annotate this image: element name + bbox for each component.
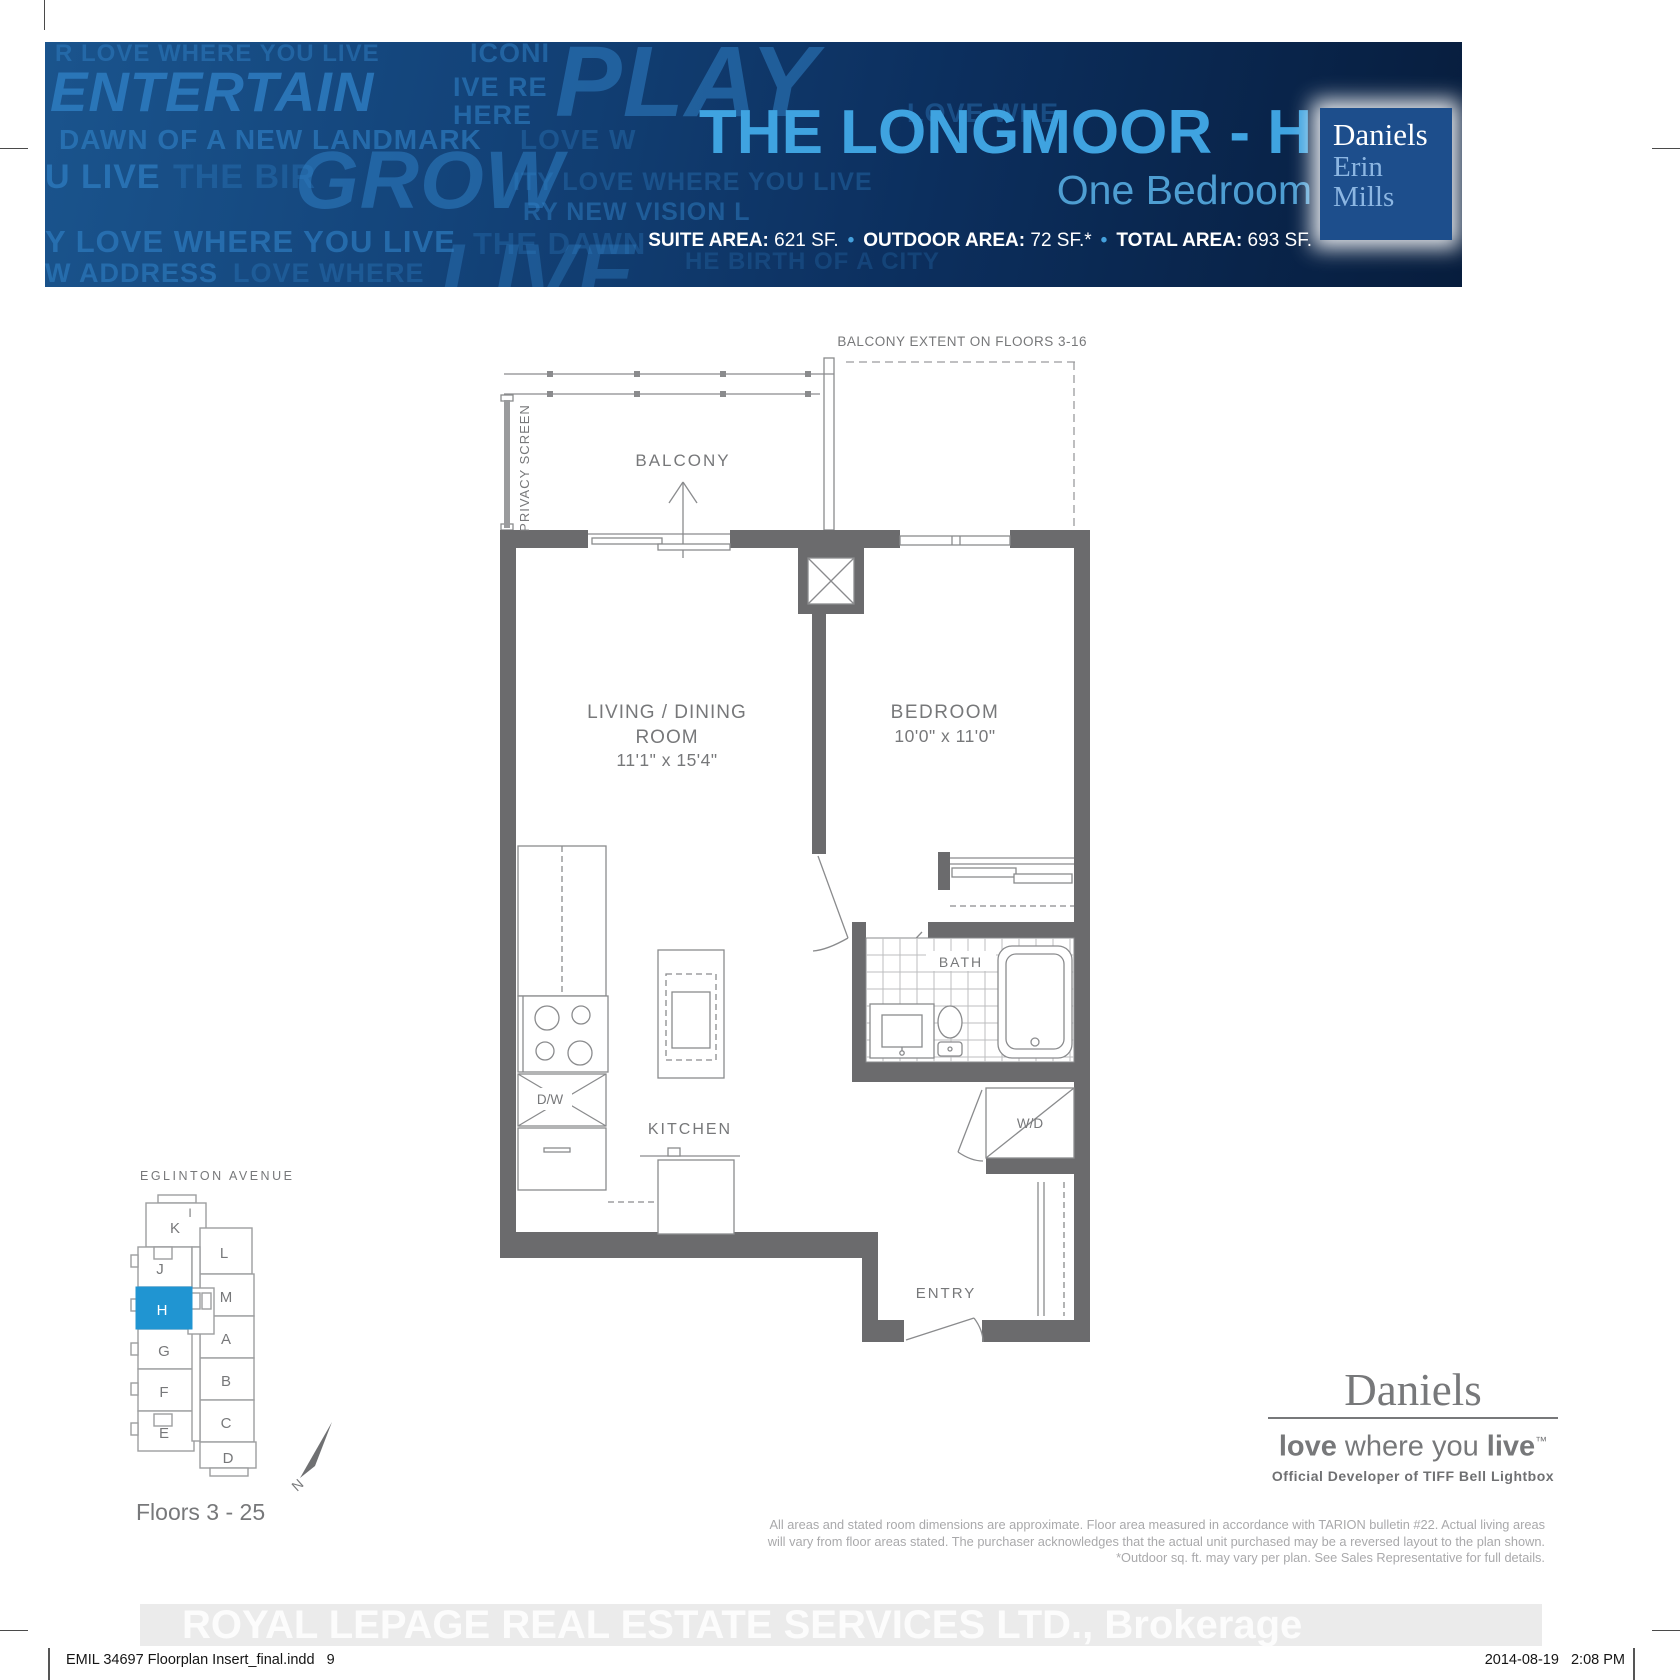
entry-door [906,1318,983,1342]
balcony-label: BALCONY [635,451,730,470]
crop-mark-left-h [0,148,28,149]
logo-line-mills: Mills [1333,182,1452,213]
bedroom-window [900,536,1010,545]
developer-line: Official Developer of TIFF Bell Lightbox [1268,1468,1558,1484]
tagline-love: love [1279,1431,1337,1463]
header-banner: R LOVE WHERE YOU LIVEICONIENTERTAINIVE R… [45,42,1462,287]
unit-c: C [221,1415,232,1432]
brokerage-watermark-text: ROYAL LEPAGE REAL ESTATE SERVICES LTD., … [182,1604,1302,1646]
disclaimer-text: All areas and stated room dimensions are… [600,1517,1545,1567]
print-bar-left [48,1648,50,1680]
disclaimer-line-3: *Outdoor sq. ft. may vary per plan. See … [600,1550,1545,1567]
unit-b: B [221,1373,231,1390]
banner-watermark-word: W ADDRESS [45,260,218,287]
entry-closet [1038,1182,1064,1316]
bedroom-dims: 10'0" x 11'0" [894,726,995,746]
total-area-value: 693 SF. [1242,230,1312,251]
crop-mark-bottom-left-h [0,1630,28,1631]
unit-i: I [188,1206,191,1220]
unit-f: F [159,1384,168,1401]
living-room-label-1: LIVING / DINING [587,702,747,723]
unit-d: D [223,1450,234,1467]
privacy-screen-label: PRIVACY SCREEN [517,404,532,532]
living-room-label-2: ROOM [635,727,698,748]
outdoor-area-label: OUTDOOR AREA: [863,230,1025,251]
bedroom-closet [950,858,1074,906]
total-area-label: TOTAL AREA: [1116,230,1242,251]
trademark-symbol: ™ [1535,1434,1547,1448]
suite-area-label: SUITE AREA: [648,230,769,251]
street-label: EGLINTON AVENUE [140,1169,294,1183]
balcony-extent-dashed [846,362,1078,528]
compass-n-label: N [288,1476,306,1495]
fridge [658,1160,734,1234]
kitchen-counters [518,846,740,1234]
balcony-railing [501,358,834,530]
daniels-erin-mills-logo: Daniels Erin Mills [1320,108,1452,240]
bedroom-door [813,856,848,951]
tagline: love where you live™ [1268,1425,1558,1463]
area-stats: SUITE AREA: 621 SF.•OUTDOOR AREA: 72 SF.… [648,230,1312,252]
unit-k: K [170,1220,180,1237]
toilet [938,1006,962,1056]
banner-watermark-word: LOVE WHERE [233,260,425,287]
bathtub [998,946,1072,1058]
unit-l: L [220,1245,228,1262]
balcony-extent-label: BALCONY EXTENT ON FLOORS 3-16 [837,334,1087,349]
stat-separator: • [839,230,864,251]
unit-m: M [220,1289,233,1306]
privacy-screen-panel [504,400,510,528]
print-bar-right [1633,1648,1635,1680]
file-note: EMIL 34697 Floorplan Insert_final.indd 9 [66,1652,335,1668]
tagline-live: live [1487,1431,1535,1463]
banner-watermark-word: Y LOVE WHERE YOU LIVE [45,226,456,257]
floorplan-drawing: BALCONY EXTENT ON FLOORS 3-16 PRIVACY SC… [495,325,1095,1385]
daniels-wordmark: Daniels [1268,1366,1558,1414]
crop-mark-top-left-v [44,0,45,30]
banner-watermark-word: LIVE [440,232,635,287]
wd-label: W/D [1017,1116,1043,1131]
disclaimer-line-2: will vary from floor areas stated. The p… [600,1534,1545,1551]
daniels-footer-logo: Daniels love where you live™ Official De… [1268,1366,1558,1484]
stat-separator: • [1092,230,1117,251]
unit-j: J [156,1261,164,1278]
keyplan: EGLINTON AVENUE [100,1160,370,1530]
logo-rule [1268,1417,1558,1419]
mechanical-shaft [808,558,854,604]
suite-area-value: 621 SF. [769,230,839,251]
banner-watermark-word: IVE RE [453,74,548,101]
unit-a: A [221,1331,231,1348]
kitchen-label: KITCHEN [648,1121,732,1138]
banner-watermark-word: ENTERTAIN [50,64,374,120]
date-stamp: 2014-08-19 2:08 PM [1300,1652,1625,1668]
unit-g: G [158,1343,170,1360]
banner-watermark-word: U LIVE [45,160,161,194]
outdoor-area-value: 72 SF.* [1025,230,1092,251]
compass-arrow [300,1422,332,1478]
stove [518,996,608,1072]
railing-posts [547,371,811,397]
bath-label: BATH [939,954,983,970]
banner-watermark-word: ICONI [470,42,550,67]
balcony-sliding-door [588,534,730,550]
brokerage-watermark-band: ROYAL LEPAGE REAL ESTATE SERVICES LTD., … [140,1604,1542,1646]
dw-label: D/W [537,1092,564,1107]
building-outline [131,1195,256,1476]
floors-range-label: Floors 3 - 25 [136,1499,265,1525]
title-block: THE LONGMOOR - H One Bedroom SUITE AREA:… [648,100,1312,252]
page-title: THE LONGMOOR - H [699,100,1312,166]
entry-label: ENTRY [916,1285,977,1302]
tagline-mid: where you [1337,1431,1487,1463]
unit-e: E [159,1425,169,1442]
bedroom-label: BEDROOM [891,702,1000,723]
brochure-page: R LOVE WHERE YOU LIVEICONIENTERTAINIVE R… [0,0,1680,1680]
crop-mark-right-h [1652,148,1680,149]
banner-watermark-word: HE BIRTH OF A CITY [685,250,940,274]
bath-vanity [870,1004,934,1058]
wd-door [958,1090,983,1161]
logo-line-erin: Erin [1333,152,1452,182]
logo-line-daniels: Daniels [1333,118,1452,152]
living-room-dims: 11'1" x 15'4" [616,750,717,770]
disclaimer-line-1: All areas and stated room dimensions are… [600,1517,1545,1534]
crop-mark-bottom-right-h [1652,1630,1680,1631]
page-subtitle: One Bedroom [1057,166,1312,214]
unit-h: H [157,1302,168,1319]
